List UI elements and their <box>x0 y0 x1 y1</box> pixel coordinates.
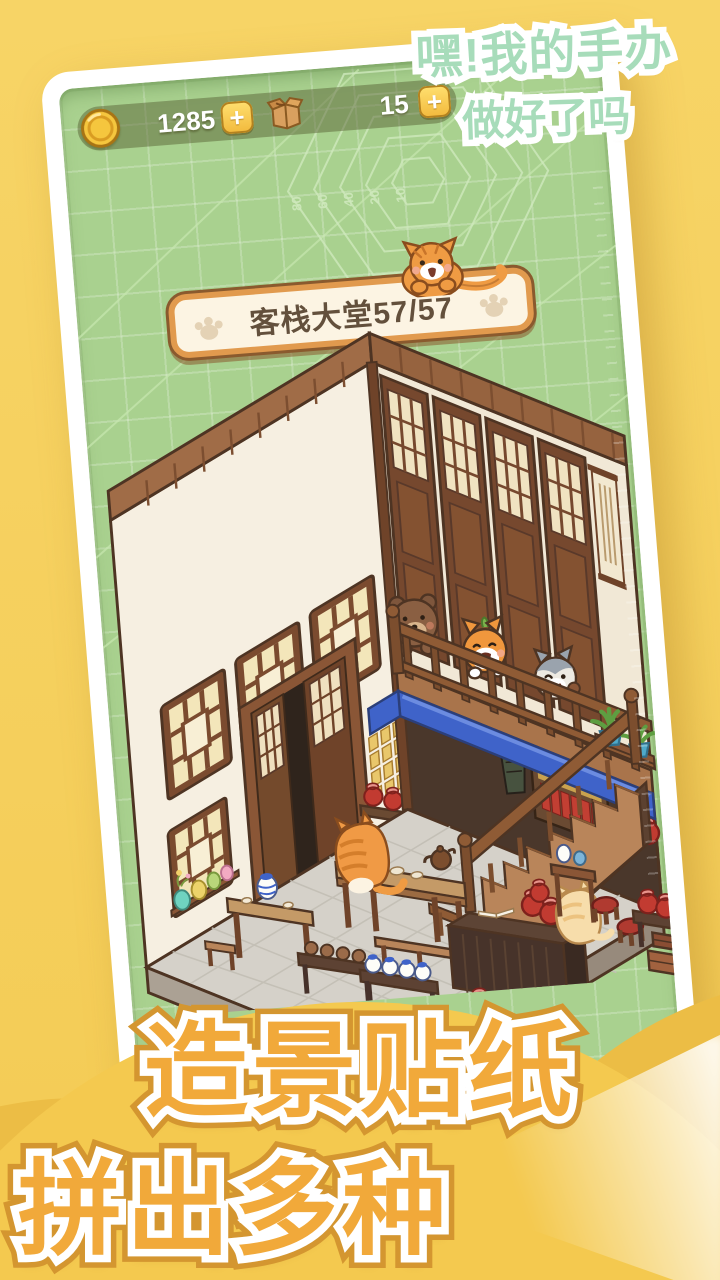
coin-amount: 1285 <box>156 104 216 140</box>
promo-line1: 造景贴纸 造景贴纸 造景贴纸 <box>144 1016 576 1128</box>
app-title: 嘿!我的手办 嘿!我的手办 做好了吗 做好了吗 <box>378 8 712 151</box>
hex-label: 60 <box>315 194 331 210</box>
promo-line2: 拼出多种 拼出多种 拼出多种 <box>18 1154 450 1266</box>
peeking-cat <box>378 232 510 300</box>
hex-label: 20 <box>367 190 383 206</box>
box-icon <box>265 95 306 132</box>
game-screen: 80 60 40 20 10 1285 + <box>0 0 720 1280</box>
hex-label: 10 <box>393 187 409 203</box>
hex-label: 80 <box>289 196 305 212</box>
add-coins-button[interactable]: + <box>220 100 254 134</box>
inn-scene[interactable] <box>76 295 675 1020</box>
coin-icon <box>78 106 123 151</box>
hex-label: 40 <box>341 192 357 208</box>
